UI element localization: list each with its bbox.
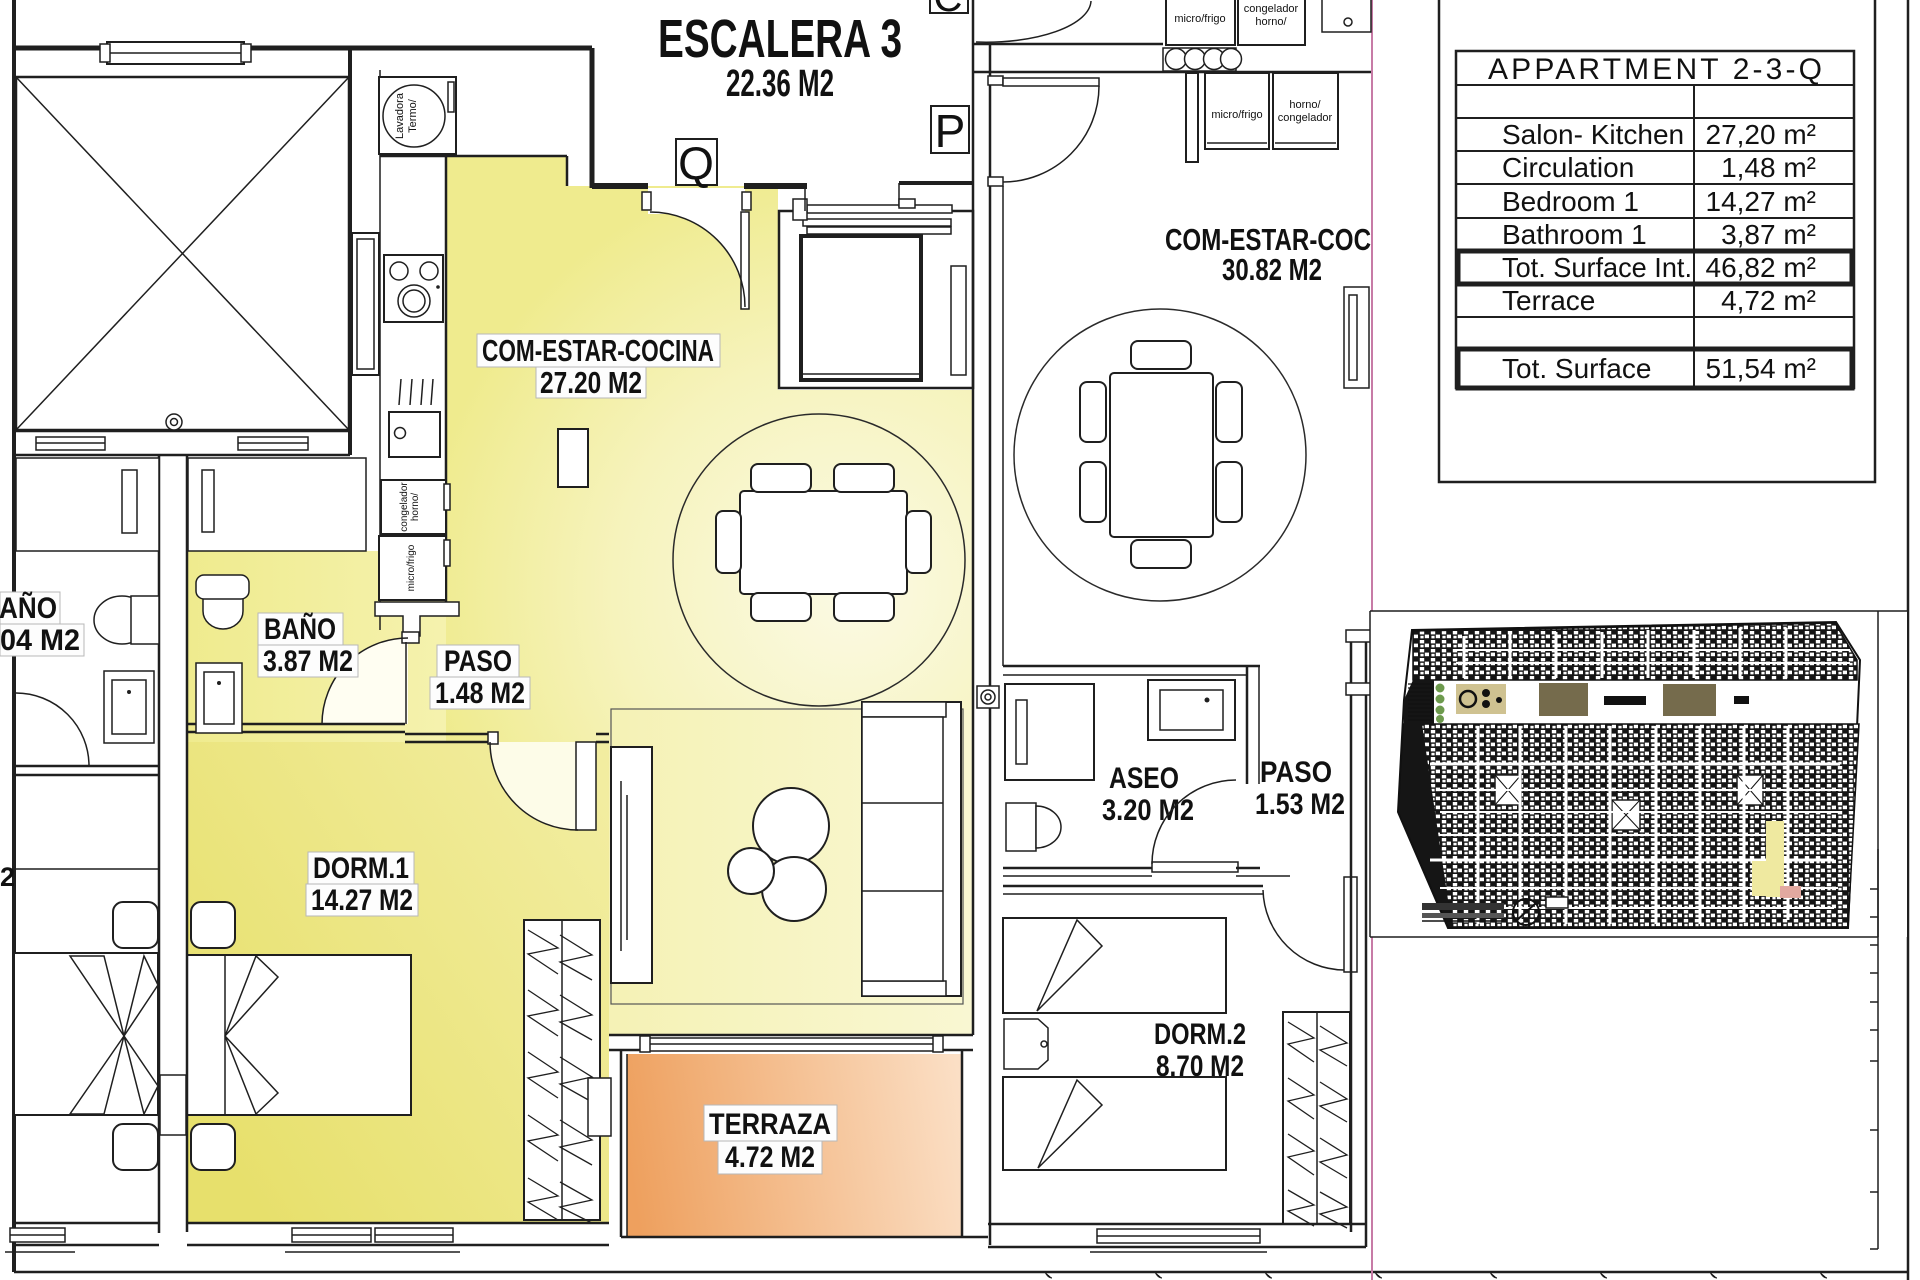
svg-text:AÑO: AÑO bbox=[0, 591, 57, 625]
svg-text:8.70 M2: 8.70 M2 bbox=[1156, 1050, 1244, 1083]
svg-text:Tot. Surface Int.: Tot. Surface Int. bbox=[1502, 252, 1692, 283]
svg-text:27,20 m²: 27,20 m² bbox=[1706, 119, 1817, 150]
svg-text:2: 2 bbox=[0, 862, 15, 892]
svg-text:Bedroom 1: Bedroom 1 bbox=[1502, 186, 1639, 217]
svg-text:3.20 M2: 3.20 M2 bbox=[1102, 794, 1194, 827]
svg-text:1,48 m²: 1,48 m² bbox=[1721, 152, 1816, 183]
svg-text:ESCALERA 3: ESCALERA 3 bbox=[658, 9, 902, 69]
svg-text:P: P bbox=[935, 105, 966, 157]
svg-text:Salon- Kitchen: Salon- Kitchen bbox=[1502, 119, 1684, 150]
svg-text:3,87 m²: 3,87 m² bbox=[1721, 219, 1816, 250]
svg-text:46,82 m²: 46,82 m² bbox=[1706, 252, 1817, 283]
svg-text:PASO: PASO bbox=[444, 645, 512, 678]
svg-text:horno/: horno/ bbox=[410, 493, 421, 522]
svg-text:22.36 M2: 22.36 M2 bbox=[726, 63, 834, 105]
svg-text:Terrace: Terrace bbox=[1502, 285, 1595, 316]
svg-text:micro/frigo: micro/frigo bbox=[406, 544, 417, 591]
svg-text:1.53 M2: 1.53 M2 bbox=[1255, 788, 1345, 821]
svg-text:Bathroom 1: Bathroom 1 bbox=[1502, 219, 1647, 250]
svg-text:congelador: congelador bbox=[1278, 112, 1333, 124]
svg-text:51,54 m²: 51,54 m² bbox=[1706, 353, 1817, 384]
svg-text:horno/: horno/ bbox=[1255, 16, 1287, 28]
svg-text:30.82 M2: 30.82 M2 bbox=[1222, 252, 1322, 287]
svg-text:14.27 M2: 14.27 M2 bbox=[311, 884, 413, 917]
svg-text:27.20 M2: 27.20 M2 bbox=[540, 365, 642, 400]
svg-text:micro/frigo: micro/frigo bbox=[1174, 13, 1225, 25]
svg-text:horno/: horno/ bbox=[1289, 99, 1321, 111]
svg-text:ASEO: ASEO bbox=[1109, 762, 1179, 795]
svg-text:BAÑO: BAÑO bbox=[264, 612, 336, 646]
svg-text:micro/frigo: micro/frigo bbox=[1211, 109, 1262, 121]
svg-text:04 M2: 04 M2 bbox=[0, 624, 80, 657]
svg-text:congelador: congelador bbox=[1244, 3, 1299, 15]
svg-text:1.48 M2: 1.48 M2 bbox=[435, 677, 525, 710]
svg-text:DORM.2: DORM.2 bbox=[1154, 1018, 1246, 1051]
svg-text:DORM.1: DORM.1 bbox=[313, 852, 409, 885]
svg-text:congelador: congelador bbox=[399, 482, 410, 532]
svg-text:COM-ESTAR-COCINA: COM-ESTAR-COCINA bbox=[482, 333, 714, 368]
svg-text:4.72 M2: 4.72 M2 bbox=[725, 1141, 815, 1174]
svg-text:4,72 m²: 4,72 m² bbox=[1721, 285, 1816, 316]
svg-text:C: C bbox=[934, 0, 963, 20]
svg-text:APPARTMENT 2-3-Q: APPARTMENT 2-3-Q bbox=[1488, 53, 1822, 86]
svg-text:PASO: PASO bbox=[1260, 756, 1332, 789]
svg-text:Q: Q bbox=[678, 137, 714, 189]
svg-text:TERRAZA: TERRAZA bbox=[709, 1108, 831, 1141]
svg-text:Circulation: Circulation bbox=[1502, 152, 1634, 183]
svg-text:Termo/: Termo/ bbox=[407, 98, 419, 133]
svg-text:3.87 M2: 3.87 M2 bbox=[263, 645, 353, 678]
svg-text:14,27 m²: 14,27 m² bbox=[1706, 186, 1817, 217]
svg-text:Lavadora: Lavadora bbox=[394, 92, 406, 139]
svg-text:Tot. Surface: Tot. Surface bbox=[1502, 353, 1651, 384]
